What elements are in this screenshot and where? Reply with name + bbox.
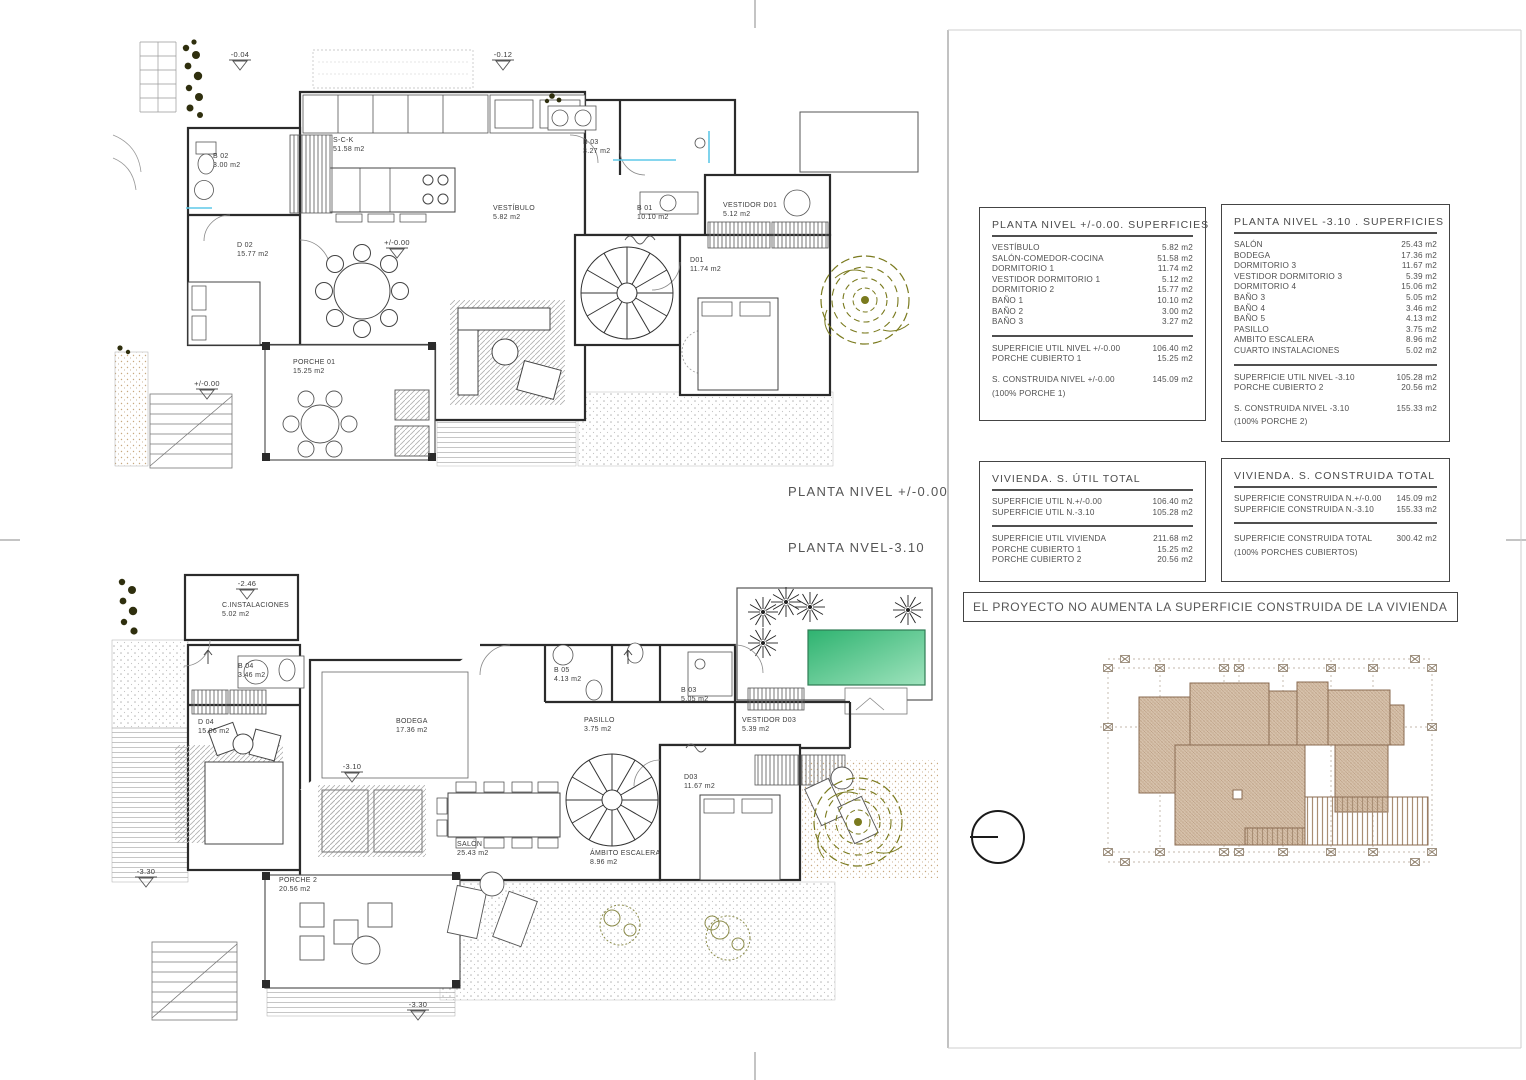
swimming-pool [808, 630, 925, 685]
sofa-zone [450, 300, 565, 405]
row-value: 5.82 m2 [1162, 243, 1193, 254]
svg-text:+/-0.00: +/-0.00 [384, 238, 410, 247]
table-row: AMBITO ESCALERA8.96 m2 [1234, 335, 1437, 346]
table-row: BAÑO 23.00 m2 [992, 307, 1193, 318]
construida-total-table: VIVIENDA. S. CONSTRUIDA TOTAL SUPERFICIE… [1221, 458, 1450, 582]
table-row: VESTÍBULO5.82 m2 [992, 243, 1193, 254]
row-label: PORCHE CUBIERTO 1 [992, 354, 1082, 365]
row-label: SUPERFICIE UTIL NIVEL +/-0.00 [992, 344, 1120, 355]
table-note: (100% PORCHES CUBIERTOS) [1234, 548, 1437, 559]
table-row: CUARTO INSTALACIONES5.02 m2 [1234, 346, 1437, 357]
table-row: PORCHE CUBIERTO 220.56 m2 [1234, 383, 1437, 394]
table-row: BODEGA17.36 m2 [1234, 251, 1437, 262]
row-label: S. CONSTRUIDA NIVEL -3.10 [1234, 404, 1349, 415]
table-rule [992, 489, 1193, 491]
row-label: AMBITO ESCALERA [1234, 335, 1314, 346]
row-label: BAÑO 5 [1234, 314, 1265, 325]
row-value: 105.28 m2 [1153, 508, 1194, 519]
street-curb [113, 135, 141, 190]
row-label: DORMITORIO 1 [992, 264, 1054, 275]
plan-lower-title: PLANTA NVEL-3.10 [788, 540, 925, 555]
row-value: 3.46 m2 [1406, 304, 1437, 315]
pergola-grid [140, 42, 176, 112]
row-label: SALÓN-COMEDOR-COCINA [992, 254, 1104, 265]
svg-text:+/-0.00: +/-0.00 [194, 379, 220, 388]
table-row: SUPERFICIE UTIL NIVEL +/-0.00106.40 m2 [992, 344, 1193, 355]
garden-swirl-plant-upper [821, 256, 909, 344]
table-row: BAÑO 110.10 m2 [992, 296, 1193, 307]
table-row: DORMITORIO 415.06 m2 [1234, 282, 1437, 293]
table-row: SUPERFICIE UTIL N.+/-0.00106.40 m2 [992, 497, 1193, 508]
table-row: SUPERFICIE UTIL N.-3.10105.28 m2 [992, 508, 1193, 519]
superficies-table-nivel-310: PLANTA NIVEL -3.10 . SUPERFICIES SALÓN25… [1221, 204, 1450, 442]
floor-plan-upper: -0.04 -0.12 +/-0.00 +/-0.00 B 023.00 m2 … [110, 30, 950, 490]
row-label: PASILLO [1234, 325, 1269, 336]
row-value: 20.56 m2 [1157, 555, 1193, 566]
row-label: BAÑO 2 [992, 307, 1023, 318]
row-value: 5.02 m2 [1406, 346, 1437, 357]
table-row: DORMITORIO 311.67 m2 [1234, 261, 1437, 272]
row-value: 211.68 m2 [1153, 534, 1193, 545]
row-value: 11.74 m2 [1158, 264, 1193, 275]
row-label: BAÑO 3 [992, 317, 1023, 328]
row-value: 3.27 m2 [1162, 317, 1193, 328]
row-label: SUPERFICIE UTIL VIVIENDA [992, 534, 1106, 545]
row-value: 4.13 m2 [1406, 314, 1437, 325]
table-row: PORCHE CUBIERTO 220.56 m2 [992, 555, 1193, 566]
kitchen-counters [303, 95, 585, 133]
table-row: VESTIDOR DORMITORIO 15.12 m2 [992, 275, 1193, 286]
drawing-sheet: -0.04 -0.12 +/-0.00 +/-0.00 B 023.00 m2 … [0, 0, 1526, 1080]
svg-text:-0.12: -0.12 [494, 50, 513, 59]
table-title: PLANTA NIVEL -3.10 . SUPERFICIES [1234, 216, 1437, 228]
row-label: VESTÍBULO [992, 243, 1040, 254]
svg-text:VESTIDOR D035.39 m2: VESTIDOR D035.39 m2 [742, 717, 796, 733]
row-label: SUPERFICIE UTIL N.+/-0.00 [992, 497, 1102, 508]
project-note-banner: EL PROYECTO NO AUMENTA LA SUPERFICIE CON… [963, 592, 1458, 622]
table-row: S. CONSTRUIDA NIVEL +/-0.00145.09 m2 [992, 375, 1193, 386]
util-total-table: VIVIENDA. S. ÚTIL TOTAL SUPERFICIE UTIL … [979, 461, 1206, 582]
table-body: SUPERFICIE UTIL N.+/-0.00106.40 m2SUPERF… [992, 497, 1193, 566]
row-label: BAÑO 3 [1234, 293, 1265, 304]
table-separator [992, 525, 1193, 527]
table-title: PLANTA NIVEL +/-0.00. SUPERFICIES [992, 219, 1193, 231]
plan-upper-title: PLANTA NIVEL +/-0.00 [788, 484, 948, 499]
row-value: 155.33 m2 [1397, 404, 1438, 415]
row-value: 17.36 m2 [1401, 251, 1437, 262]
table-row: SALÓN25.43 m2 [1234, 240, 1437, 251]
table-row: SUPERFICIE UTIL VIVIENDA211.68 m2 [992, 534, 1193, 545]
hedge-plants-lower [119, 579, 138, 635]
row-value: 106.40 m2 [1153, 497, 1194, 508]
table-row: S. CONSTRUIDA NIVEL -3.10155.33 m2 [1234, 404, 1437, 415]
bed-d02 [188, 282, 260, 345]
row-value: 20.56 m2 [1401, 383, 1437, 394]
table-row: DORMITORIO 111.74 m2 [992, 264, 1193, 275]
row-label: SUPERFICIE CONSTRUIDA N.+/-0.00 [1234, 494, 1381, 505]
table-row: BAÑO 54.13 m2 [1234, 314, 1437, 325]
row-value: 3.00 m2 [1162, 307, 1193, 318]
roof-surfaces [1139, 682, 1428, 845]
row-value: 15.25 m2 [1157, 354, 1193, 365]
row-value: 105.28 m2 [1397, 373, 1438, 384]
row-value: 300.42 m2 [1397, 534, 1438, 545]
row-label: VESTIDOR DORMITORIO 1 [992, 275, 1100, 286]
row-label: PORCHE CUBIERTO 1 [992, 545, 1082, 556]
table-note: (100% PORCHE 1) [992, 389, 1193, 400]
row-label: DORMITORIO 3 [1234, 261, 1296, 272]
table-row: BAÑO 35.05 m2 [1234, 293, 1437, 304]
table-body: SALÓN25.43 m2BODEGA17.36 m2DORMITORIO 31… [1234, 240, 1437, 428]
exterior-stairs [150, 394, 232, 468]
row-label: SUPERFICIE UTIL NIVEL -3.10 [1234, 373, 1355, 384]
row-label: DORMITORIO 4 [1234, 282, 1296, 293]
table-row: SUPERFICIE CONSTRUIDA TOTAL300.42 m2 [1234, 534, 1437, 545]
row-label: SUPERFICIE UTIL N.-3.10 [992, 508, 1095, 519]
table-title: VIVIENDA. S. CONSTRUIDA TOTAL [1234, 470, 1437, 482]
exterior-stairs-lower [152, 942, 237, 1020]
row-value: 10.10 m2 [1157, 296, 1193, 307]
row-label: SUPERFICIE CONSTRUIDA TOTAL [1234, 534, 1372, 545]
table-row: DORMITORIO 215.77 m2 [992, 285, 1193, 296]
table-row: BAÑO 33.27 m2 [992, 317, 1193, 328]
row-label: S. CONSTRUIDA NIVEL +/-0.00 [992, 375, 1115, 386]
table-row: SALÓN-COMEDOR-COCINA51.58 m2 [992, 254, 1193, 265]
table-body: VESTÍBULO5.82 m2SALÓN-COMEDOR-COCINA51.5… [992, 243, 1193, 399]
table-rule [992, 235, 1193, 237]
dining-table [316, 245, 409, 338]
row-value: 15.77 m2 [1157, 285, 1193, 296]
row-label: VESTIDOR DORMITORIO 3 [1234, 272, 1342, 283]
row-label: CUARTO INSTALACIONES [1234, 346, 1339, 357]
svg-text:-3.30: -3.30 [137, 867, 156, 876]
row-value: 145.09 m2 [1397, 494, 1438, 505]
svg-text:-3.30: -3.30 [409, 1000, 428, 1009]
table-row: BAÑO 43.46 m2 [1234, 304, 1437, 315]
row-value: 8.96 m2 [1406, 335, 1437, 346]
row-label: DORMITORIO 2 [992, 285, 1054, 296]
table-separator [1234, 364, 1437, 366]
row-label: BODEGA [1234, 251, 1270, 262]
roof-plan [950, 625, 1470, 895]
table-separator [992, 335, 1193, 337]
row-value: 5.39 m2 [1406, 272, 1437, 283]
bed-d03 [700, 795, 780, 880]
row-label: BAÑO 1 [992, 296, 1023, 307]
table-row: VESTIDOR DORMITORIO 35.39 m2 [1234, 272, 1437, 283]
row-label: PORCHE CUBIERTO 2 [992, 555, 1082, 566]
floor-plan-lower: -2.46 -3.10 -3.30 -3.30 C.INSTALACIONES5… [105, 560, 950, 1030]
table-body: SUPERFICIE CONSTRUIDA N.+/-0.00145.09 m2… [1234, 494, 1437, 558]
row-value: 106.40 m2 [1153, 344, 1194, 355]
row-value: 51.58 m2 [1157, 254, 1193, 265]
svg-text:-0.04: -0.04 [231, 50, 250, 59]
table-title: VIVIENDA. S. ÚTIL TOTAL [992, 473, 1193, 485]
table-row: SUPERFICIE CONSTRUIDA N.-3.10155.33 m2 [1234, 505, 1437, 516]
table-separator [1234, 522, 1437, 524]
row-value: 3.75 m2 [1406, 325, 1437, 336]
north-symbol [970, 811, 1024, 863]
row-value: 5.12 m2 [1162, 275, 1193, 286]
table-row: PASILLO3.75 m2 [1234, 325, 1437, 336]
row-value: 25.43 m2 [1401, 240, 1437, 251]
row-value: 15.25 m2 [1157, 545, 1193, 556]
row-label: SUPERFICIE CONSTRUIDA N.-3.10 [1234, 505, 1374, 516]
row-label: BAÑO 4 [1234, 304, 1265, 315]
svg-text:-3.10: -3.10 [343, 762, 362, 771]
table-note: (100% PORCHE 2) [1234, 417, 1437, 428]
table-rule [1234, 486, 1437, 488]
table-row: SUPERFICIE CONSTRUIDA N.+/-0.00145.09 m2 [1234, 494, 1437, 505]
row-value: 155.33 m2 [1397, 505, 1438, 516]
table-row: PORCHE CUBIERTO 115.25 m2 [992, 354, 1193, 365]
superficies-table-nivel-0: PLANTA NIVEL +/-0.00. SUPERFICIES VESTÍB… [979, 207, 1206, 421]
row-label: PORCHE CUBIERTO 2 [1234, 383, 1324, 394]
table-rule [1234, 232, 1437, 234]
row-value: 15.06 m2 [1401, 282, 1437, 293]
table-row: PORCHE CUBIERTO 115.25 m2 [992, 545, 1193, 556]
row-label: SALÓN [1234, 240, 1263, 251]
row-value: 5.05 m2 [1406, 293, 1437, 304]
table-row: SUPERFICIE UTIL NIVEL -3.10105.28 m2 [1234, 373, 1437, 384]
row-value: 145.09 m2 [1153, 375, 1194, 386]
row-value: 11.67 m2 [1402, 261, 1437, 272]
svg-text:-2.46: -2.46 [238, 579, 257, 588]
